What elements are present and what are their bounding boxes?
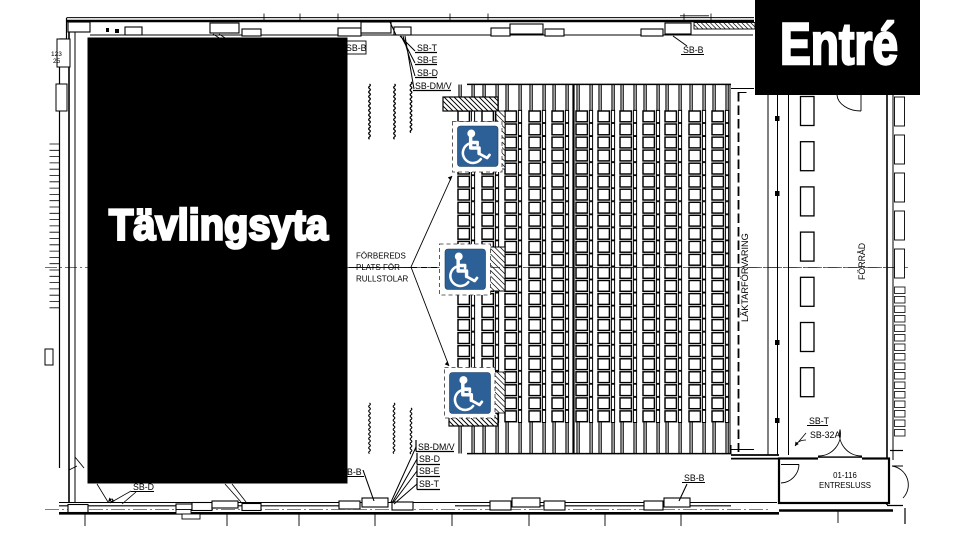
svg-text:SB-B: SB-B — [346, 43, 367, 53]
svg-text:SB-E: SB-E — [417, 55, 438, 65]
svg-text:01-116: 01-116 — [833, 471, 857, 480]
svg-text:SB-B: SB-B — [683, 45, 704, 55]
svg-text:SB-T: SB-T — [417, 43, 438, 53]
svg-text:SB-D: SB-D — [419, 454, 440, 464]
svg-text:SB-DM/V: SB-DM/V — [418, 442, 455, 452]
svg-text:Entré: Entré — [780, 12, 898, 77]
svg-text:25: 25 — [53, 58, 61, 65]
svg-text:SB-T: SB-T — [419, 479, 440, 489]
svg-text:FÖRRÅD: FÖRRÅD — [857, 243, 867, 280]
svg-text:123: 123 — [51, 51, 62, 58]
svg-text:SB-D: SB-D — [417, 68, 438, 78]
svg-text:B-B: B-B — [347, 467, 362, 477]
svg-text:SB-E: SB-E — [419, 466, 440, 476]
svg-text:SB-B: SB-B — [684, 473, 705, 483]
svg-text:SB-32A: SB-32A — [810, 430, 840, 440]
svg-text:PLATS FÖR: PLATS FÖR — [356, 263, 400, 272]
svg-text:RULLSTOLAR: RULLSTOLAR — [356, 275, 409, 284]
svg-text:SB-DM/V: SB-DM/V — [415, 81, 452, 91]
svg-text:ENTRESLUSS: ENTRESLUSS — [819, 481, 871, 490]
svg-text:Tävlingsyta: Tävlingsyta — [109, 201, 328, 250]
svg-text:SB-T: SB-T — [809, 416, 830, 426]
svg-text:LÄKTARFÖRVARING: LÄKTARFÖRVARING — [740, 233, 750, 322]
svg-text:FÖRBEREDS: FÖRBEREDS — [356, 252, 406, 261]
